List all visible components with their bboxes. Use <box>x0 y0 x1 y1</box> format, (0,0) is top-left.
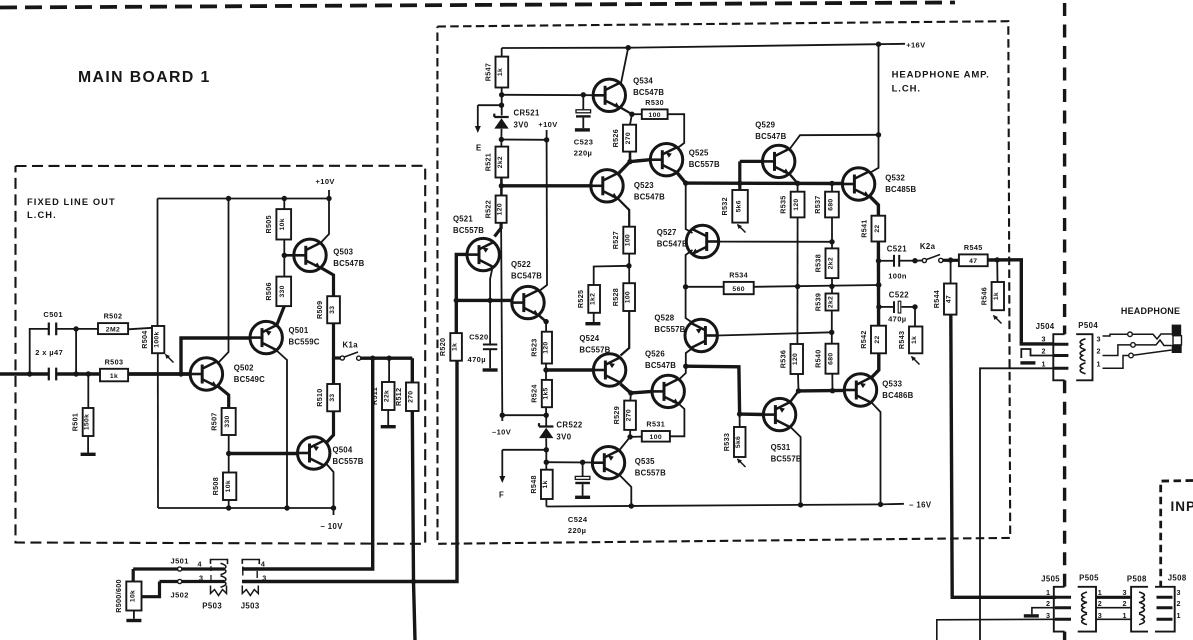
svg-text:2: 2 <box>1177 599 1181 608</box>
svg-text:3V0: 3V0 <box>556 433 571 442</box>
svg-text:Q502: Q502 <box>234 364 254 373</box>
svg-text:R546: R546 <box>979 287 988 305</box>
svg-text:Q522: Q522 <box>511 260 531 269</box>
svg-text:P505: P505 <box>1079 574 1099 583</box>
svg-text:C523: C523 <box>574 138 594 147</box>
svg-text:Q524: Q524 <box>579 334 599 343</box>
svg-text:BC547B: BC547B <box>333 259 364 268</box>
svg-text:BC557B: BC557B <box>771 455 802 464</box>
svg-text:270: 270 <box>408 391 415 403</box>
svg-text:J504: J504 <box>1036 322 1055 331</box>
svg-text:R527: R527 <box>611 231 620 249</box>
svg-text:BC485B: BC485B <box>885 185 916 194</box>
svg-text:L.CH.: L.CH. <box>27 210 57 220</box>
svg-text:1: 1 <box>1046 588 1050 597</box>
svg-text:22: 22 <box>874 225 881 233</box>
svg-text:R540: R540 <box>813 350 822 368</box>
svg-text:270: 270 <box>625 132 632 144</box>
svg-text:1k: 1k <box>452 343 459 351</box>
svg-text:R525: R525 <box>576 290 585 308</box>
svg-text:BC547B: BC547B <box>657 240 688 249</box>
svg-text:R536: R536 <box>778 350 787 368</box>
svg-text:3V0: 3V0 <box>514 121 529 130</box>
svg-text:BC547B: BC547B <box>511 272 542 281</box>
svg-text:560: 560 <box>732 286 745 293</box>
svg-text:R522: R522 <box>483 200 492 218</box>
svg-text:R545: R545 <box>964 243 983 252</box>
svg-text:120: 120 <box>542 341 549 353</box>
svg-text:– 10V: – 10V <box>321 522 344 531</box>
svg-text:P504: P504 <box>1078 321 1098 330</box>
svg-text:J505: J505 <box>1041 575 1060 584</box>
svg-text:R503: R503 <box>105 357 124 366</box>
svg-text:R547: R547 <box>483 63 492 81</box>
svg-text:10k: 10k <box>279 218 286 230</box>
svg-text:1: 1 <box>1123 611 1127 620</box>
svg-text:5k6: 5k6 <box>735 436 742 448</box>
svg-text:+10V: +10V <box>538 120 557 129</box>
svg-text:100: 100 <box>648 112 661 119</box>
svg-text:220µ: 220µ <box>574 149 592 158</box>
svg-text:R521: R521 <box>483 153 492 171</box>
svg-text:2: 2 <box>1097 347 1101 356</box>
svg-text:R532: R532 <box>720 197 729 215</box>
svg-text:R502: R502 <box>104 312 123 321</box>
svg-text:47: 47 <box>969 258 977 265</box>
svg-text:3: 3 <box>199 574 203 583</box>
svg-text:Q529: Q529 <box>755 121 775 130</box>
svg-text:Q521: Q521 <box>453 215 473 224</box>
svg-text:R523: R523 <box>530 338 539 356</box>
svg-text:Q504: Q504 <box>333 446 353 455</box>
svg-text:3: 3 <box>1123 588 1127 597</box>
svg-text:10k: 10k <box>225 480 232 492</box>
svg-text:Q501: Q501 <box>289 326 309 335</box>
svg-text:470µ: 470µ <box>468 355 486 364</box>
svg-text:R534: R534 <box>729 270 748 279</box>
svg-text:Q535: Q535 <box>635 457 655 466</box>
svg-text:R509: R509 <box>315 301 324 319</box>
svg-text:CR522: CR522 <box>556 421 583 430</box>
svg-text:2: 2 <box>1098 599 1102 608</box>
svg-text:BC549C: BC549C <box>234 375 265 384</box>
svg-text:2k2: 2k2 <box>827 257 834 269</box>
svg-text:Q527: Q527 <box>657 228 677 237</box>
svg-text:3: 3 <box>1042 335 1046 344</box>
svg-text:1k: 1k <box>542 480 549 488</box>
svg-text:R501: R501 <box>71 413 80 431</box>
svg-text:22k: 22k <box>384 390 391 402</box>
svg-text:47: 47 <box>946 295 953 303</box>
svg-text:1k: 1k <box>911 336 918 344</box>
svg-text:3: 3 <box>1097 335 1101 344</box>
svg-text:R505: R505 <box>264 215 273 233</box>
svg-text:R538: R538 <box>813 254 822 272</box>
svg-text:P508: P508 <box>1127 575 1147 584</box>
svg-text:Q528: Q528 <box>654 314 674 323</box>
svg-text:R539: R539 <box>813 293 822 311</box>
svg-text:R500/600: R500/600 <box>114 579 123 613</box>
svg-text:C520: C520 <box>469 333 489 342</box>
svg-text:Q532: Q532 <box>885 174 905 183</box>
svg-text:BC557B: BC557B <box>579 346 610 355</box>
svg-text:2k2: 2k2 <box>497 156 504 168</box>
svg-text:CR521: CR521 <box>514 109 541 118</box>
svg-text:4: 4 <box>198 559 202 568</box>
svg-text:1k2: 1k2 <box>590 293 597 305</box>
svg-text:Q525: Q525 <box>689 149 709 158</box>
svg-text:100: 100 <box>625 291 632 303</box>
svg-text:2M2: 2M2 <box>106 326 120 333</box>
svg-text:P503: P503 <box>202 602 222 611</box>
svg-text:BC557B: BC557B <box>453 226 484 235</box>
svg-text:Q526: Q526 <box>645 350 665 359</box>
svg-text:2: 2 <box>1046 599 1050 608</box>
svg-text:4: 4 <box>261 559 265 568</box>
svg-text:Q533: Q533 <box>882 380 902 389</box>
svg-text:R524: R524 <box>530 384 539 402</box>
svg-text:R531: R531 <box>646 420 665 429</box>
svg-text:HEADPHONE: HEADPHONE <box>1121 306 1180 316</box>
svg-text:Q534: Q534 <box>633 77 653 86</box>
svg-text:BC547B: BC547B <box>633 88 664 97</box>
svg-text:R526: R526 <box>611 129 620 147</box>
svg-text:330: 330 <box>279 285 286 297</box>
svg-text:120: 120 <box>792 353 799 365</box>
svg-text:680: 680 <box>827 198 834 210</box>
svg-text:33: 33 <box>329 394 336 402</box>
svg-text:R541: R541 <box>859 219 868 237</box>
svg-text:R512: R512 <box>394 388 403 406</box>
svg-text:1: 1 <box>1177 611 1181 620</box>
svg-text:HEADPHONE AMP.: HEADPHONE AMP. <box>892 70 990 81</box>
svg-text:J503: J503 <box>241 602 260 611</box>
svg-text:100k: 100k <box>154 331 161 347</box>
svg-text:R506: R506 <box>264 282 273 300</box>
svg-text:R548: R548 <box>529 475 538 493</box>
svg-text:MAIN BOARD 1: MAIN BOARD 1 <box>78 69 211 86</box>
svg-text:100: 100 <box>650 434 663 441</box>
svg-text:+10V: +10V <box>316 177 335 186</box>
svg-text:R530: R530 <box>645 98 664 107</box>
svg-text:FIXED LINE OUT: FIXED LINE OUT <box>27 197 116 207</box>
svg-text:BC557B: BC557B <box>654 325 685 334</box>
svg-text:BC557B: BC557B <box>689 160 720 169</box>
svg-text:R542: R542 <box>859 330 868 348</box>
svg-text:F: F <box>499 491 504 500</box>
svg-text:R533: R533 <box>722 433 731 451</box>
svg-text:–10V: –10V <box>492 428 511 437</box>
svg-text:Q523: Q523 <box>634 181 654 190</box>
svg-text:J501: J501 <box>171 557 189 566</box>
svg-text:+16V: +16V <box>906 40 925 49</box>
svg-text:1k5: 1k5 <box>542 387 549 399</box>
svg-text:BC547B: BC547B <box>755 132 786 141</box>
svg-text:2: 2 <box>1042 347 1046 356</box>
svg-text:680: 680 <box>827 353 834 365</box>
svg-text:R537: R537 <box>813 195 822 213</box>
svg-text:2: 2 <box>1123 599 1127 608</box>
svg-text:1k: 1k <box>993 292 1000 300</box>
svg-text:220µ: 220µ <box>568 526 586 535</box>
svg-text:270: 270 <box>625 409 632 421</box>
svg-text:Q531: Q531 <box>771 443 791 452</box>
svg-text:BC559C: BC559C <box>289 337 320 346</box>
svg-text:1: 1 <box>1042 360 1046 369</box>
svg-text:22: 22 <box>874 335 881 343</box>
svg-text:3: 3 <box>1177 588 1181 597</box>
svg-text:10k: 10k <box>129 590 136 602</box>
svg-text:R529: R529 <box>612 406 621 424</box>
svg-text:1k: 1k <box>497 68 504 76</box>
svg-text:5k6: 5k6 <box>735 200 742 212</box>
svg-text:33: 33 <box>329 306 336 314</box>
svg-text:120: 120 <box>793 198 800 210</box>
svg-text:BC547B: BC547B <box>645 361 676 370</box>
svg-text:BC486B: BC486B <box>882 391 913 400</box>
svg-text:C524: C524 <box>568 515 588 524</box>
svg-text:470µ: 470µ <box>888 315 906 324</box>
svg-text:INPUT: INPUT <box>1171 499 1193 514</box>
svg-text:R535: R535 <box>779 195 788 213</box>
svg-text:J502: J502 <box>171 591 189 600</box>
svg-text:100: 100 <box>625 234 632 246</box>
svg-text:330: 330 <box>224 415 231 427</box>
svg-text:R507: R507 <box>209 412 218 430</box>
svg-text:– 16V: – 16V <box>909 501 932 510</box>
svg-text:BC557B: BC557B <box>333 457 364 466</box>
svg-text:150k: 150k <box>84 414 91 430</box>
svg-text:R544: R544 <box>932 290 941 308</box>
svg-text:1k: 1k <box>110 373 118 380</box>
svg-text:J508: J508 <box>1168 574 1187 583</box>
svg-text:R510: R510 <box>315 388 324 406</box>
svg-text:2k2: 2k2 <box>827 296 834 308</box>
svg-text:100n: 100n <box>888 272 907 281</box>
svg-text:BC557B: BC557B <box>635 469 666 478</box>
svg-text:C522: C522 <box>889 291 910 300</box>
svg-text:R508: R508 <box>211 477 220 495</box>
svg-text:C521: C521 <box>887 245 908 254</box>
svg-text:2 x µ47: 2 x µ47 <box>35 348 63 357</box>
svg-text:K1a: K1a <box>343 341 359 350</box>
svg-text:R504: R504 <box>140 330 149 348</box>
svg-text:C501: C501 <box>43 310 63 319</box>
svg-text:120: 120 <box>497 203 504 215</box>
svg-text:R543: R543 <box>897 331 906 349</box>
svg-text:L.CH.: L.CH. <box>892 84 921 95</box>
svg-text:E: E <box>476 144 482 153</box>
svg-text:1: 1 <box>1098 588 1102 597</box>
svg-text:R528: R528 <box>611 288 620 306</box>
svg-text:BC547B: BC547B <box>634 193 665 202</box>
svg-text:1: 1 <box>1097 360 1101 369</box>
svg-text:K2a: K2a <box>920 242 936 251</box>
svg-text:Q503: Q503 <box>333 247 353 256</box>
svg-text:R520: R520 <box>438 338 447 356</box>
